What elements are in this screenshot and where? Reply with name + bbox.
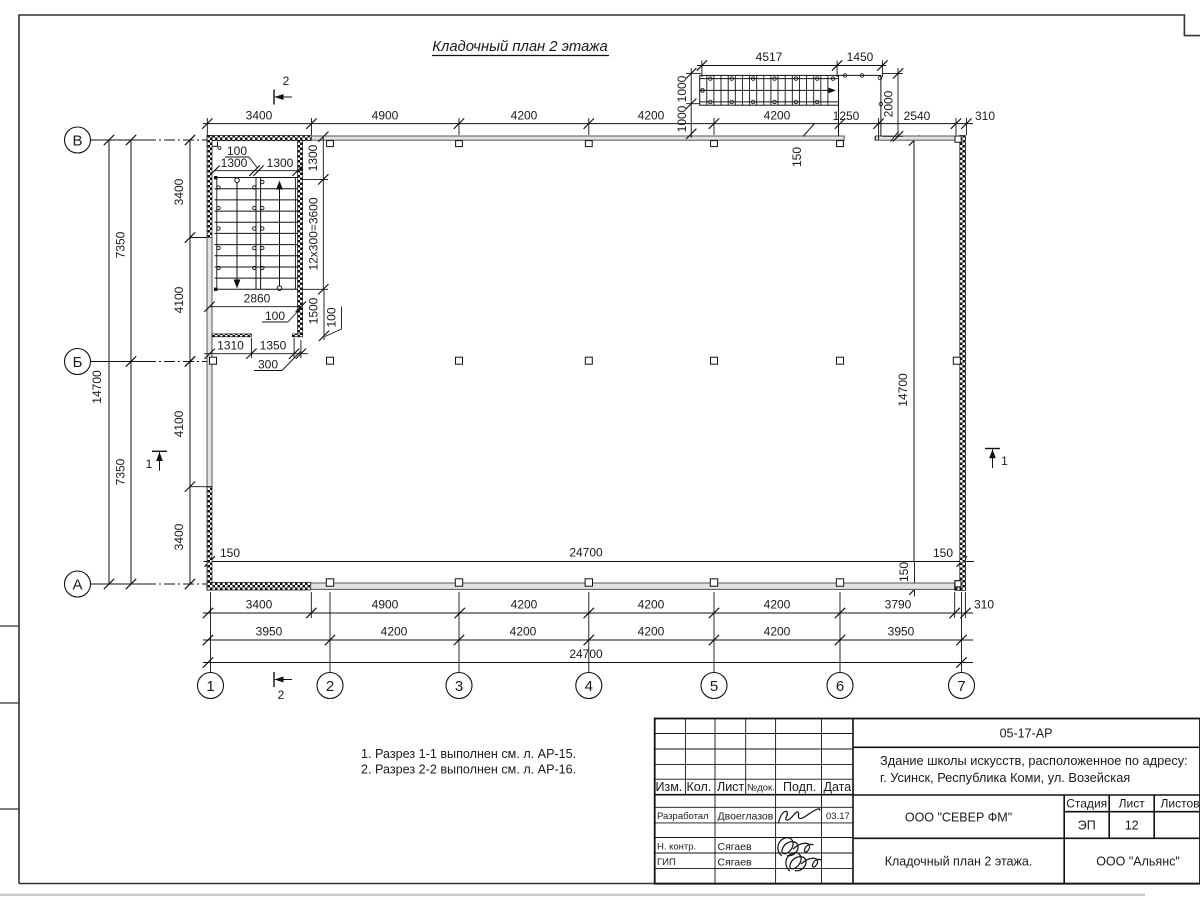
svg-text:1300: 1300 xyxy=(221,156,248,170)
svg-text:г. Усинск, Республика Коми, ул: г. Усинск, Республика Коми, ул. Возейска… xyxy=(880,770,1130,785)
svg-text:100: 100 xyxy=(227,144,247,158)
svg-text:1350: 1350 xyxy=(260,338,287,352)
svg-text:Листов: Листов xyxy=(1161,797,1200,811)
svg-text:Подп.: Подп. xyxy=(783,780,816,794)
svg-text:В: В xyxy=(72,132,82,149)
svg-text:310: 310 xyxy=(974,598,994,612)
svg-text:3950: 3950 xyxy=(256,625,283,639)
svg-text:А: А xyxy=(72,576,82,593)
svg-text:3400: 3400 xyxy=(246,109,273,123)
svg-text:4200: 4200 xyxy=(511,598,538,612)
svg-text:ООО "СЕВЕР ФМ": ООО "СЕВЕР ФМ" xyxy=(905,811,1012,825)
svg-text:2540: 2540 xyxy=(904,109,931,123)
svg-text:2: 2 xyxy=(326,678,334,695)
svg-text:4900: 4900 xyxy=(372,109,399,123)
svg-text:3950: 3950 xyxy=(888,625,915,639)
svg-text:1310: 1310 xyxy=(217,338,244,352)
svg-text:Кладочный план 2 этажа: Кладочный план 2 этажа xyxy=(432,39,607,55)
svg-text:100: 100 xyxy=(325,307,339,327)
svg-text:7350: 7350 xyxy=(114,458,128,485)
svg-text:1300: 1300 xyxy=(306,144,320,171)
svg-text:4200: 4200 xyxy=(638,598,665,612)
svg-text:4517: 4517 xyxy=(756,50,783,64)
svg-text:6: 6 xyxy=(836,678,844,695)
svg-text:3400: 3400 xyxy=(172,523,186,550)
svg-text:Здание школы искусств, располо: Здание школы искусств, расположенное по … xyxy=(880,753,1188,768)
svg-text:150: 150 xyxy=(220,546,240,560)
svg-text:Стадия: Стадия xyxy=(1066,797,1107,811)
svg-text:Сягаев: Сягаев xyxy=(718,841,753,853)
svg-text:Изм.: Изм. xyxy=(656,780,683,794)
svg-text:2860: 2860 xyxy=(244,291,271,305)
svg-text:12х300=3600: 12х300=3600 xyxy=(307,197,321,270)
svg-text:14700: 14700 xyxy=(90,370,104,404)
svg-text:150: 150 xyxy=(790,147,804,167)
svg-text:4200: 4200 xyxy=(381,625,408,639)
svg-text:100: 100 xyxy=(265,309,285,323)
svg-text:24700: 24700 xyxy=(569,647,603,661)
svg-text:Кол.: Кол. xyxy=(687,780,712,794)
svg-text:150: 150 xyxy=(897,562,911,582)
svg-text:4200: 4200 xyxy=(764,625,791,639)
svg-text:4200: 4200 xyxy=(510,625,537,639)
svg-text:Кладочный план 2 этажа.: Кладочный план 2 этажа. xyxy=(885,855,1033,869)
svg-text:1500: 1500 xyxy=(307,297,321,324)
svg-text:Сягаев: Сягаев xyxy=(718,856,753,868)
svg-text:3400: 3400 xyxy=(172,178,186,205)
svg-text:1: 1 xyxy=(1001,454,1008,468)
svg-text:Б: Б xyxy=(73,354,83,371)
svg-text:1000: 1000 xyxy=(675,105,689,132)
svg-text:Дата: Дата xyxy=(824,780,852,794)
svg-text:5: 5 xyxy=(710,678,718,695)
svg-text:Лист: Лист xyxy=(1119,797,1146,811)
svg-text:24700: 24700 xyxy=(569,546,603,560)
svg-text:4: 4 xyxy=(585,678,593,695)
svg-text:2000: 2000 xyxy=(882,90,896,117)
svg-text:4200: 4200 xyxy=(638,109,665,123)
svg-text:2: 2 xyxy=(283,74,290,88)
svg-text:4200: 4200 xyxy=(764,598,791,612)
svg-text:Н. контр.: Н. контр. xyxy=(657,842,696,853)
svg-text:300: 300 xyxy=(258,358,278,372)
svg-text:05-17-АР: 05-17-АР xyxy=(1000,727,1053,741)
svg-text:14700: 14700 xyxy=(896,373,910,407)
svg-text:1300: 1300 xyxy=(267,156,294,170)
svg-text:ЭП: ЭП xyxy=(1078,819,1096,833)
svg-text:Разработал: Разработал xyxy=(657,811,709,822)
svg-text:1: 1 xyxy=(206,678,214,695)
svg-text:3790: 3790 xyxy=(885,598,912,612)
svg-text:4100: 4100 xyxy=(172,410,186,437)
svg-text:1: 1 xyxy=(146,457,153,471)
svg-text:4200: 4200 xyxy=(764,109,791,123)
svg-text:4200: 4200 xyxy=(511,109,538,123)
svg-text:4900: 4900 xyxy=(372,598,399,612)
svg-text:3400: 3400 xyxy=(246,598,273,612)
svg-text:3: 3 xyxy=(455,678,463,695)
svg-text:Лист: Лист xyxy=(717,780,744,794)
svg-text:ООО "Альянс": ООО "Альянс" xyxy=(1096,855,1180,869)
svg-text:1000: 1000 xyxy=(675,75,689,102)
svg-text:1450: 1450 xyxy=(847,50,874,64)
svg-text:12: 12 xyxy=(1125,819,1139,833)
svg-text:4100: 4100 xyxy=(172,286,186,313)
svg-text:ГИП: ГИП xyxy=(657,857,676,868)
svg-text:Двоеглазов: Двоеглазов xyxy=(718,811,774,823)
svg-text:№док.: №док. xyxy=(747,783,775,794)
svg-text:310: 310 xyxy=(975,109,995,123)
svg-text:03.17: 03.17 xyxy=(826,811,850,822)
svg-text:7350: 7350 xyxy=(114,231,128,258)
svg-text:1. Разрез 1-1 выполнен см. л.: 1. Разрез 1-1 выполнен см. л. АР-15. xyxy=(361,747,576,761)
svg-text:4200: 4200 xyxy=(638,625,665,639)
svg-text:1250: 1250 xyxy=(833,109,860,123)
svg-text:150: 150 xyxy=(933,546,953,560)
svg-text:2. Разрез 2-2 выполнен см. л.: 2. Разрез 2-2 выполнен см. л. АР-16. xyxy=(361,763,576,777)
svg-text:7: 7 xyxy=(957,678,965,695)
svg-text:2: 2 xyxy=(278,688,285,702)
